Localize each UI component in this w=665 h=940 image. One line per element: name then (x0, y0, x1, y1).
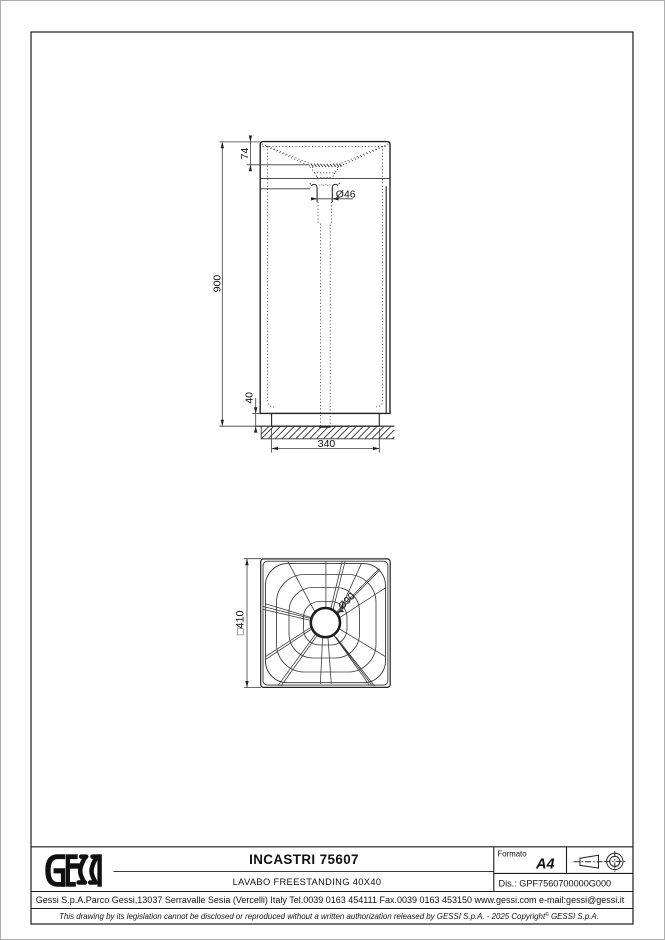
svg-text:Gessi S.p.A.Parco Gessi,13037: Gessi S.p.A.Parco Gessi,13037 Serravalle… (36, 895, 625, 905)
svg-text:40: 40 (244, 392, 256, 404)
svg-text:Ø46: Ø46 (336, 188, 356, 200)
svg-text:Dis.: GPF7560700000G000: Dis.: GPF7560700000G000 (499, 879, 612, 889)
svg-text:74: 74 (239, 148, 251, 160)
svg-text:A4: A4 (535, 857, 555, 873)
svg-text:□410: □410 (235, 611, 247, 636)
svg-text:LAVABO FREESTANDING 40X40: LAVABO FREESTANDING 40X40 (233, 877, 382, 887)
svg-text:340: 340 (318, 438, 336, 450)
svg-text:INCASTRI 75607: INCASTRI 75607 (249, 852, 359, 867)
svg-text:Formato: Formato (498, 850, 528, 859)
svg-text:900: 900 (211, 275, 223, 293)
svg-text:This drawing by its legislatio: This drawing by its legislation cannot b… (59, 911, 599, 921)
